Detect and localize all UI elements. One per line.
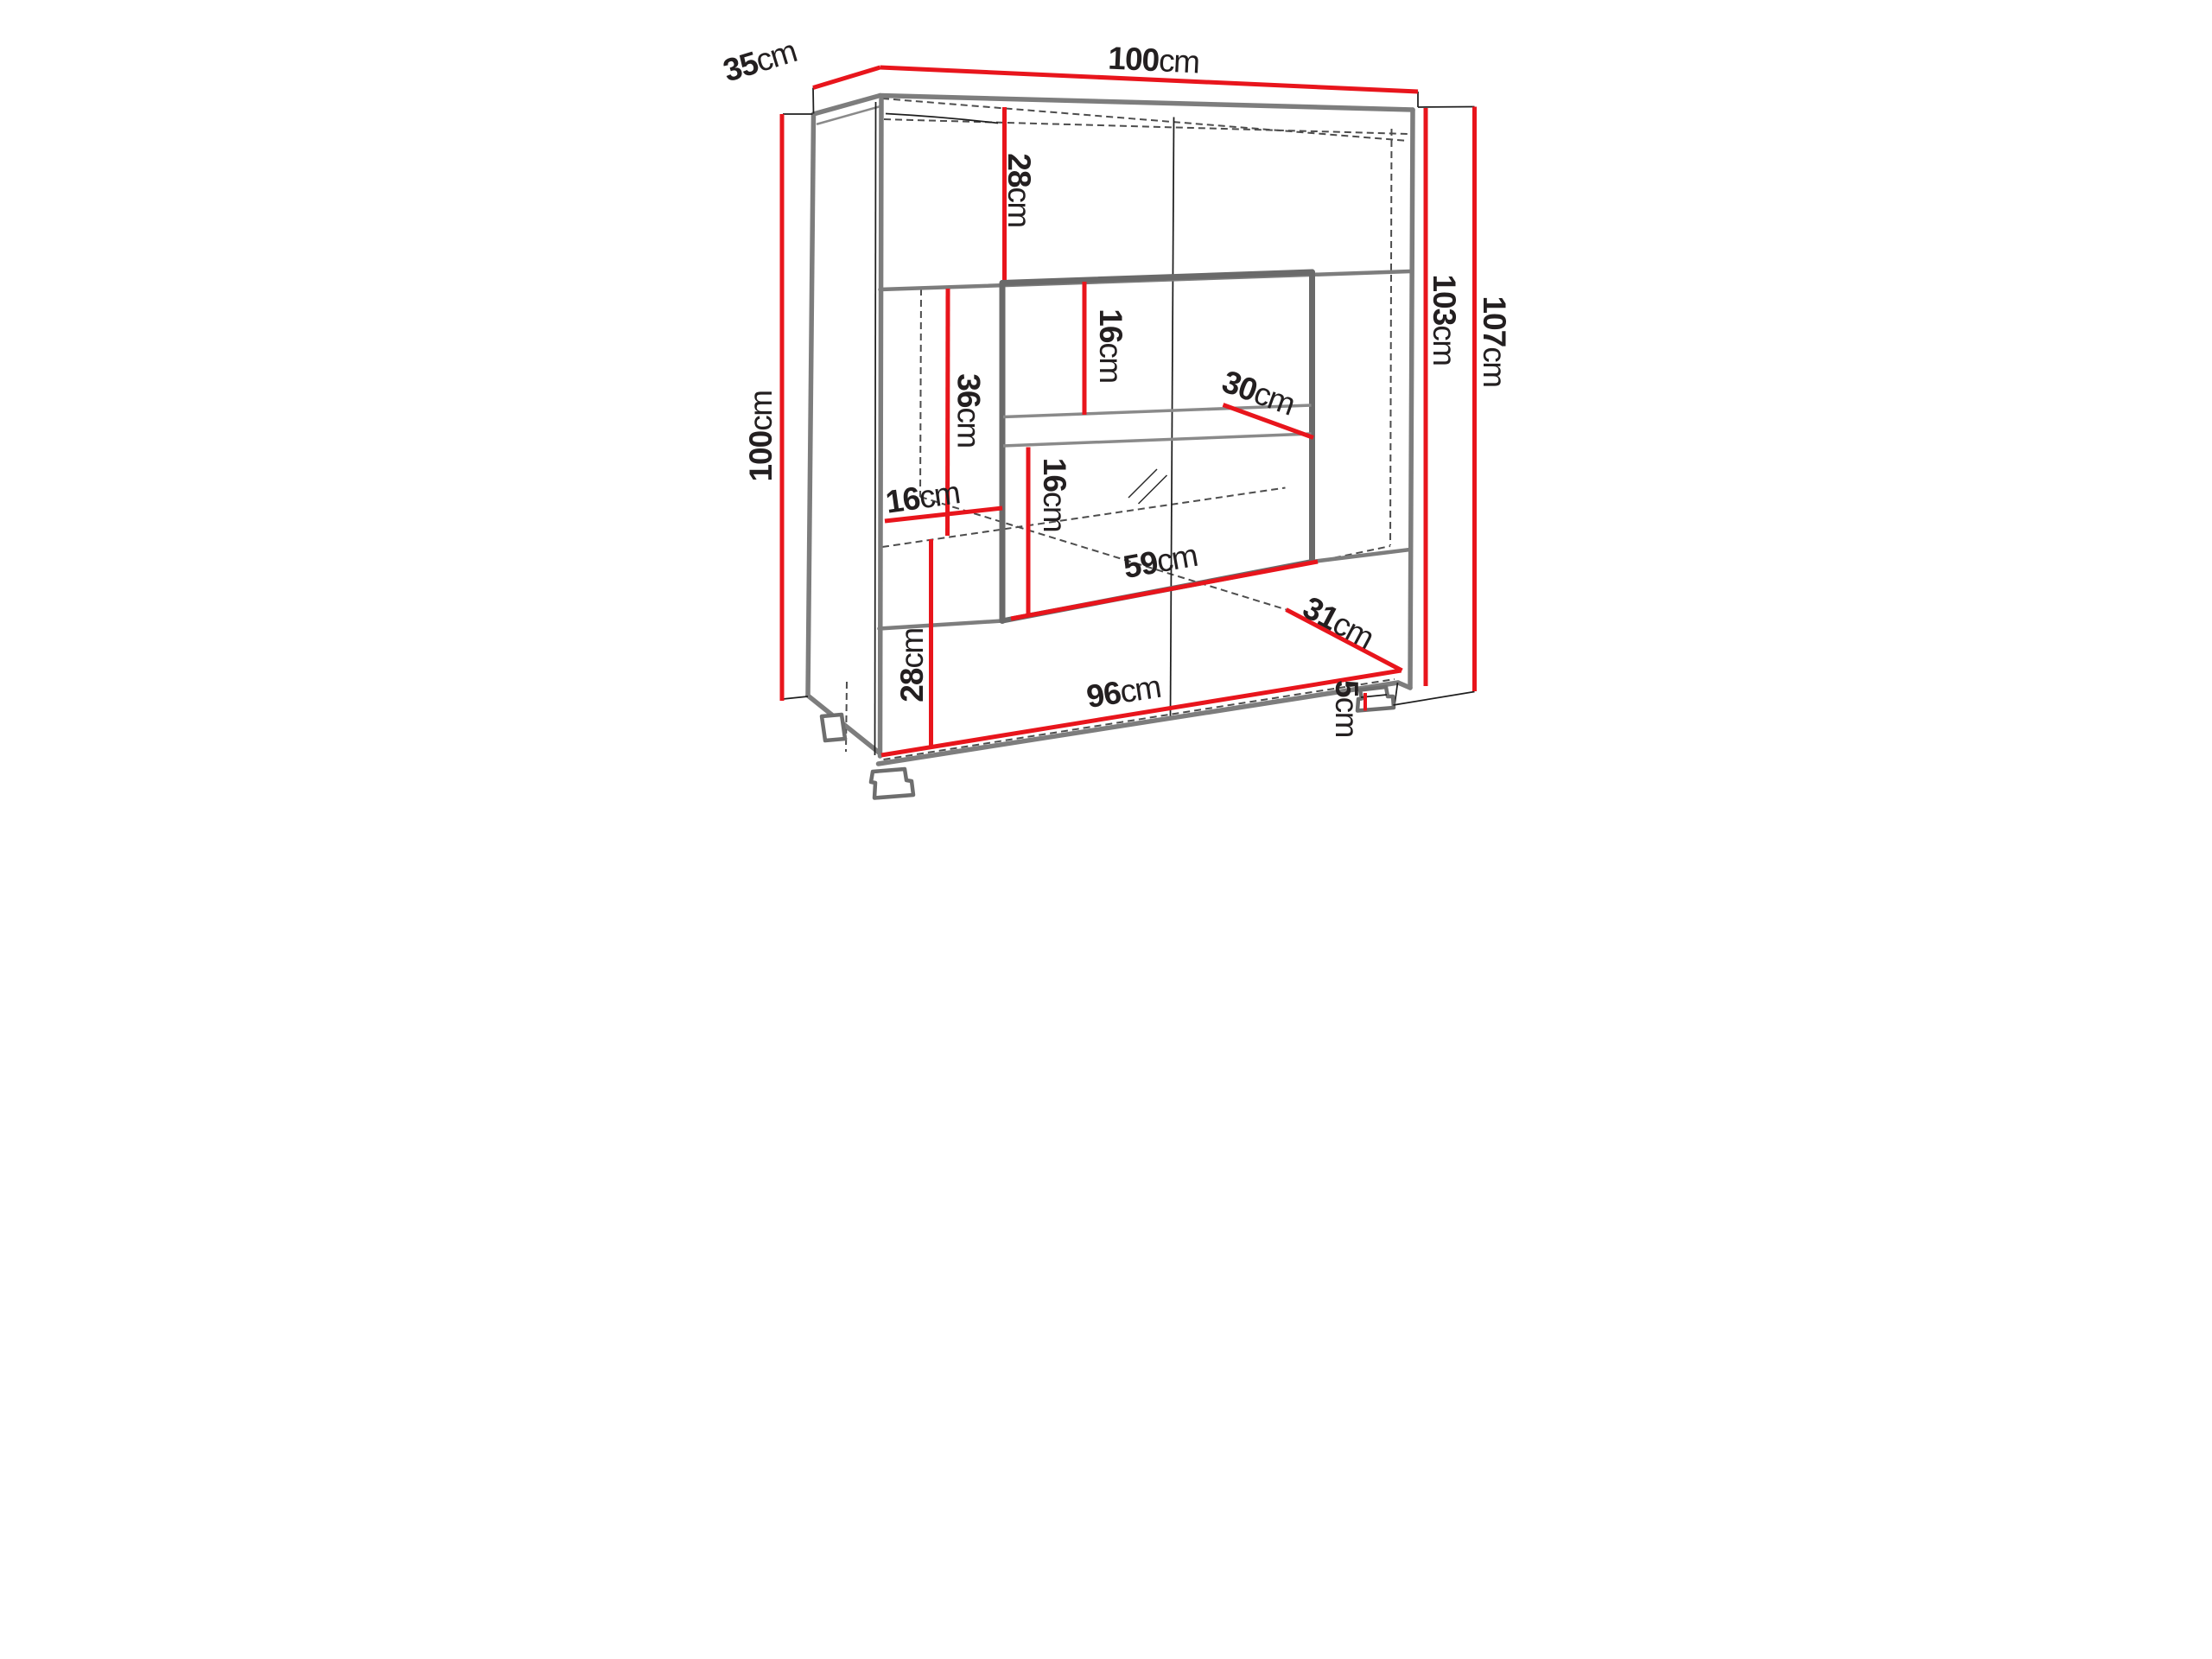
hidden-left-inner-wall bbox=[920, 289, 921, 497]
dimension-diagram: 35cm 100cm 100cm 103cm 107cm 28cm 36cm 1… bbox=[553, 0, 1659, 829]
ext-right-heights-top bbox=[1418, 107, 1475, 108]
back-left-edge bbox=[808, 114, 814, 696]
dim-label-bottom-depth: 31cm bbox=[1298, 589, 1380, 655]
dim-label-height-inner-right: 103cm bbox=[1427, 274, 1463, 365]
back-left-leg bbox=[822, 715, 845, 741]
cabinet-dimension-drawing: 35cm 100cm 100cm 103cm 107cm 28cm 36cm 1… bbox=[553, 0, 1659, 829]
dimension-labels: 35cm 100cm 100cm 103cm 107cm 28cm 36cm 1… bbox=[719, 33, 1512, 737]
dim-label-shelf-depth: 30cm bbox=[1217, 363, 1299, 422]
front-left-leg bbox=[871, 769, 913, 798]
dim-label-bottom-section: 28cm bbox=[894, 628, 930, 702]
hidden-bottom-left-back-wall bbox=[846, 682, 847, 752]
right-edge bbox=[1410, 110, 1413, 688]
dim-line-depth-top bbox=[813, 67, 880, 88]
top-left-depth-edge bbox=[814, 96, 880, 115]
hidden-top-back-edge bbox=[884, 119, 1408, 134]
dim-label-top-section: 28cm bbox=[1002, 153, 1038, 226]
glass-reflection-mark bbox=[1139, 475, 1167, 504]
glass-shelf-back-edge bbox=[1003, 434, 1312, 446]
dim-label-depth-top: 35cm bbox=[719, 33, 800, 88]
ext-depth-top bbox=[813, 88, 814, 114]
ext-right-heights-bottom bbox=[1394, 692, 1475, 706]
dim-label-inner-lower: 16cm bbox=[1038, 458, 1073, 531]
center-divider bbox=[1171, 118, 1174, 716]
dim-label-leg-height: 5cm bbox=[1330, 680, 1365, 737]
front-left-edge bbox=[880, 99, 882, 756]
hidden-right-back-corner bbox=[1390, 129, 1392, 545]
extension-lines bbox=[783, 88, 1475, 706]
dim-label-middle-section: 36cm bbox=[951, 373, 987, 447]
dim-label-height-total-right: 107cm bbox=[1478, 296, 1513, 386]
top-edge bbox=[880, 96, 1414, 111]
dim-label-height-left: 100cm bbox=[743, 391, 779, 481]
glass-reflection-mark bbox=[1128, 469, 1157, 498]
dim-label-inner-upper: 16cm bbox=[1094, 308, 1129, 382]
front-left-door-gap bbox=[875, 102, 876, 755]
hidden-box-back-bottom-edge bbox=[920, 497, 1287, 610]
dim-label-width-top: 100cm bbox=[1108, 40, 1200, 79]
dim-label-display-width: 59cm bbox=[1121, 537, 1199, 584]
ext-height-left-bottom bbox=[783, 696, 808, 699]
dim-label-bottom-width: 96cm bbox=[1084, 668, 1163, 714]
